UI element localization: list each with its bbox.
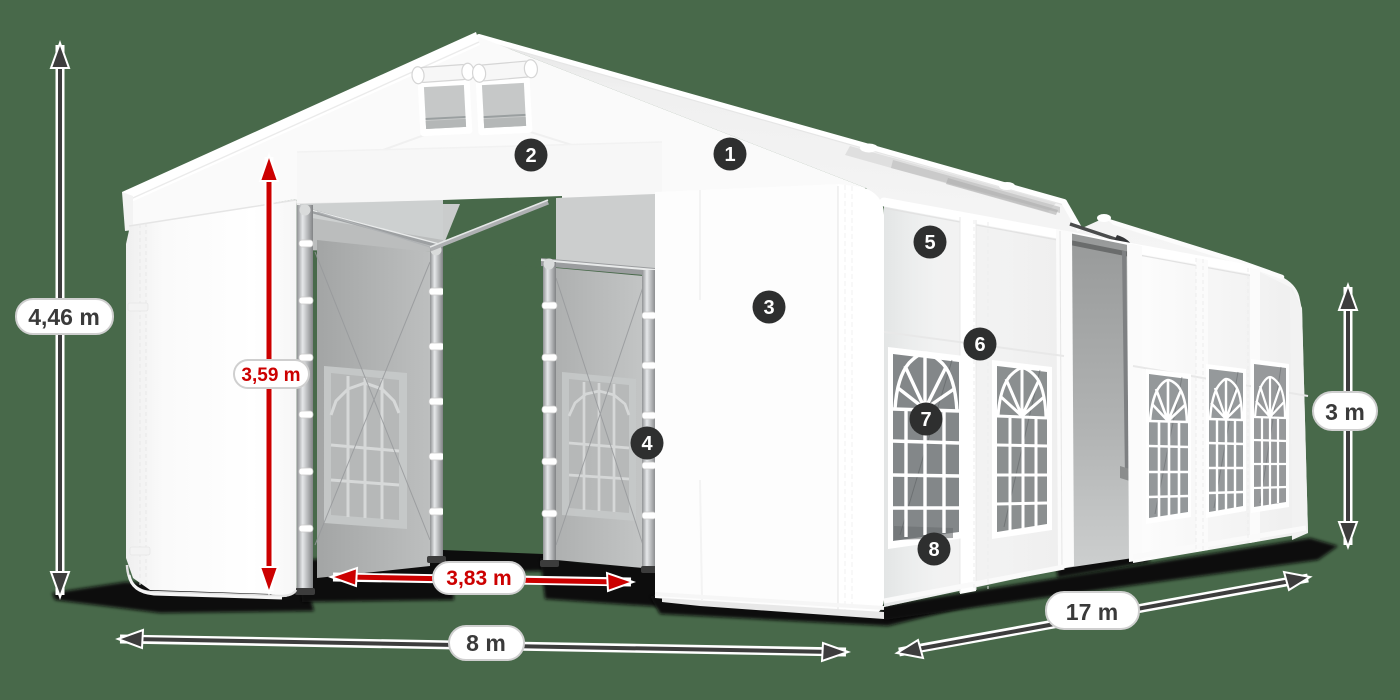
svg-text:3,83 m: 3,83 m [446, 567, 511, 590]
svg-text:4: 4 [641, 433, 653, 455]
svg-text:3: 3 [763, 297, 774, 319]
svg-text:5: 5 [924, 232, 935, 254]
svg-text:6: 6 [974, 334, 985, 356]
svg-text:1: 1 [724, 144, 735, 166]
svg-text:17 m: 17 m [1066, 599, 1118, 625]
svg-text:2: 2 [525, 145, 536, 167]
svg-text:3,59 m: 3,59 m [241, 365, 300, 386]
svg-text:8: 8 [928, 539, 939, 561]
svg-text:8 m: 8 m [466, 630, 506, 656]
svg-text:3 m: 3 m [1325, 399, 1365, 425]
svg-text:4,46 m: 4,46 m [28, 304, 100, 330]
svg-text:7: 7 [920, 409, 931, 431]
